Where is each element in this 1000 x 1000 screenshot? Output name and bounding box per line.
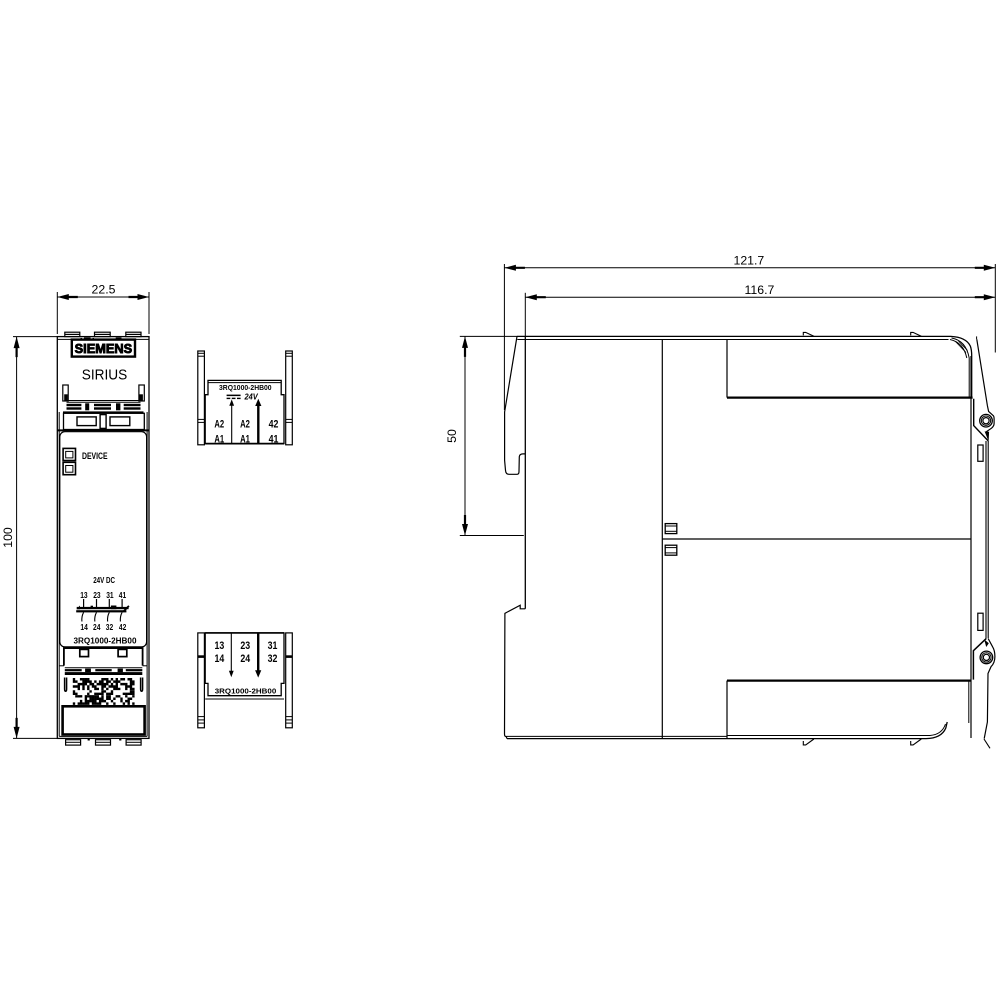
svg-text:41: 41	[119, 591, 127, 600]
svg-text:A2: A2	[240, 419, 250, 431]
svg-text:DEVICE: DEVICE	[82, 451, 108, 461]
svg-text:3RQ1000-2HB00: 3RQ1000-2HB00	[74, 636, 137, 646]
svg-text:23: 23	[240, 640, 250, 652]
svg-text:14: 14	[215, 653, 225, 665]
svg-text:42: 42	[119, 623, 127, 632]
svg-text:50: 50	[445, 429, 459, 443]
svg-text:42: 42	[269, 419, 279, 431]
svg-text:24V: 24V	[244, 393, 259, 402]
svg-text:3RQ1000-2HB00: 3RQ1000-2HB00	[215, 686, 277, 695]
svg-text:41: 41	[269, 434, 279, 446]
svg-text:23: 23	[93, 591, 101, 600]
svg-text:31: 31	[106, 591, 114, 600]
svg-text:32: 32	[268, 653, 278, 665]
svg-text:32: 32	[106, 623, 114, 632]
svg-text:22.5: 22.5	[92, 282, 116, 296]
svg-text:A2: A2	[214, 419, 224, 431]
svg-text:SIRIUS: SIRIUS	[82, 367, 128, 384]
svg-text:116.7: 116.7	[744, 283, 774, 297]
svg-text:100: 100	[1, 527, 15, 548]
svg-text:A1: A1	[214, 434, 224, 446]
svg-text:24: 24	[93, 623, 101, 632]
svg-text:13: 13	[80, 591, 88, 600]
svg-text:SIEMENS: SIEMENS	[75, 341, 133, 356]
svg-text:31: 31	[268, 640, 278, 652]
svg-text:24V DC: 24V DC	[93, 576, 115, 585]
svg-text:24: 24	[240, 653, 250, 665]
svg-text:3RQ1000-2HB00: 3RQ1000-2HB00	[219, 385, 272, 392]
svg-text:14: 14	[80, 623, 88, 632]
svg-text:13: 13	[215, 640, 225, 652]
svg-text:121.7: 121.7	[734, 254, 765, 268]
svg-text:A1: A1	[240, 434, 250, 446]
